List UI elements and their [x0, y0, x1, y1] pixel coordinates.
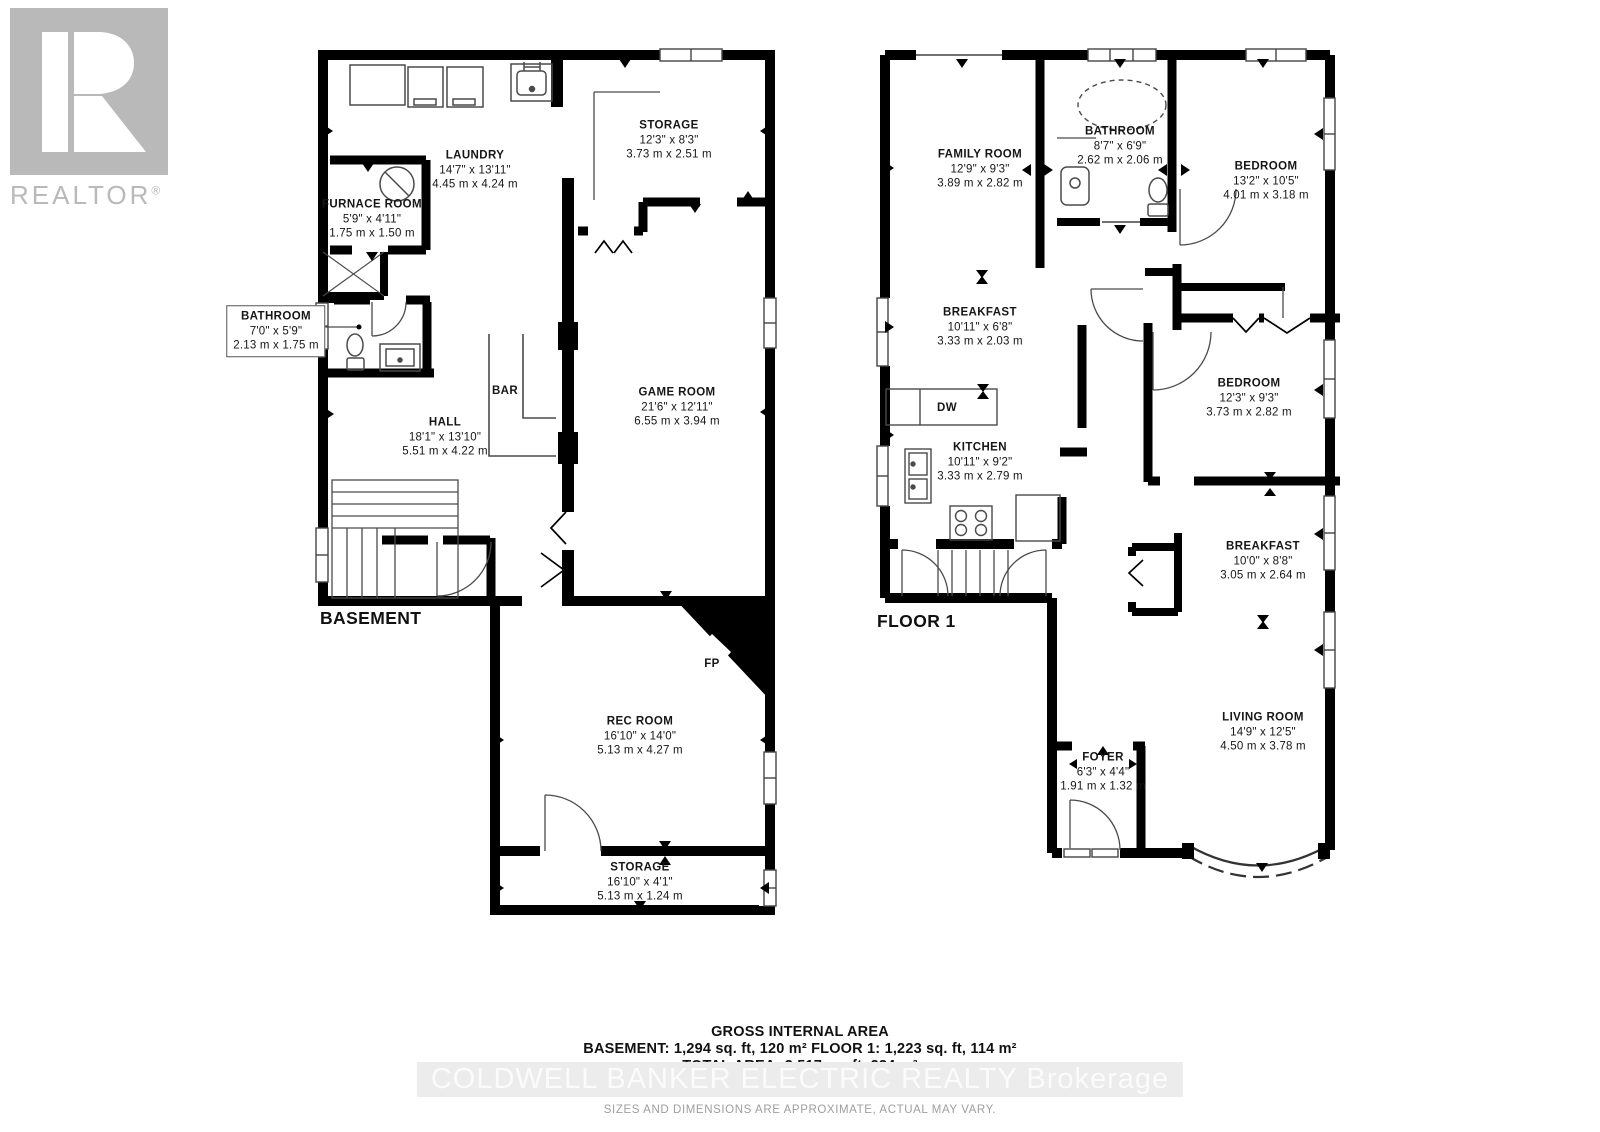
- room-label-rec-room: REC ROOM 16'10" x 14'0" 5.13 m x 4.27 m: [597, 714, 682, 758]
- stove: [950, 506, 992, 540]
- area-title: GROSS INTERNAL AREA: [0, 1024, 1600, 1041]
- room-label-storage-bottom: STORAGE 16'10" x 4'1" 5.13 m x 1.24 m: [597, 860, 682, 904]
- furnace-icon: [380, 167, 414, 201]
- laundry-appliances: [350, 65, 483, 107]
- room-label-floor1-bathroom: BATHROOM 8'7" x 6'9" 2.62 m x 2.06 m: [1077, 124, 1162, 168]
- room-label-dishwasher: DW: [937, 401, 957, 416]
- crawlspace-x: [323, 252, 384, 296]
- brokerage-watermark: COLDWELL BANKER ELECTRIC REALTY Brokerag…: [417, 1062, 1183, 1097]
- area-line1: BASEMENT: 1,294 sq. ft, 120 m² FLOOR 1: …: [0, 1041, 1600, 1058]
- floorplan-drawing: [0, 0, 1600, 1132]
- basement-door-chevrons: [541, 241, 632, 587]
- room-label-bedroom2: BEDROOM 12'3" x 9'3" 3.73 m x 2.82 m: [1206, 376, 1291, 420]
- basement-floorplan: [312, 44, 781, 910]
- basement-windows: [316, 49, 776, 906]
- bathtub: [1078, 80, 1166, 130]
- room-label-laundry: LAUNDRY 14'7" x 13'11" 4.45 m x 4.24 m: [432, 148, 517, 192]
- floorplan-page: REALTOR®: [0, 0, 1600, 1132]
- room-label-game-room: GAME ROOM 21'6" x 12'11" 6.55 m x 3.94 m: [634, 385, 719, 429]
- floor1-toilet: [1148, 178, 1168, 216]
- kitchen-sink: [905, 449, 931, 503]
- room-label-breakfast2: BREAKFAST 10'0" x 8'8" 3.05 m x 2.64 m: [1220, 539, 1305, 583]
- room-label-storage-top: STORAGE 12'3" x 8'3" 3.73 m x 2.51 m: [626, 118, 711, 162]
- room-label-bedroom1: BEDROOM 13'2" x 10'5" 4.01 m x 3.18 m: [1223, 159, 1308, 203]
- floor1-stairs: [938, 550, 1008, 596]
- basement-ticks: [324, 59, 769, 910]
- room-label-bar: BAR: [492, 384, 518, 399]
- room-label-family-room: FAMILY ROOM 12'9" x 9'3" 3.89 m x 2.82 m: [937, 147, 1022, 191]
- basement-shower: [380, 344, 420, 371]
- kitchen-counter: [1016, 495, 1060, 541]
- laundry-sink: [511, 62, 552, 101]
- floor1-bathroom-sink: [1061, 167, 1089, 205]
- basement-stairs: [332, 480, 458, 598]
- room-label-kitchen: KITCHEN 10'11" x 9'2" 3.33 m x 2.79 m: [937, 440, 1022, 484]
- bay-window: [1182, 843, 1330, 877]
- room-label-furnace-room: FURNACE ROOM 5'9" x 4'11" 1.75 m x 1.50 …: [322, 197, 422, 241]
- floor1-title: FLOOR 1: [877, 611, 956, 632]
- disclaimer-text: SIZES AND DIMENSIONS ARE APPROXIMATE, AC…: [604, 1104, 996, 1116]
- fireplace: [672, 596, 770, 700]
- room-label-fireplace: FP: [704, 657, 720, 672]
- basement-title: BASEMENT: [320, 608, 421, 629]
- basement-toilet: [347, 334, 364, 370]
- room-label-breakfast1: BREAKFAST 10'11" x 6'8" 3.33 m x 2.03 m: [937, 305, 1022, 349]
- room-label-hall: HALL 18'1" x 13'10" 5.51 m x 4.22 m: [402, 415, 487, 459]
- room-label-foyer: FOYER 6'3" x 4'4" 1.91 m x 1.32 m: [1060, 750, 1145, 794]
- room-label-basement-bathroom: BATHROOM 7'0" x 5'9" 2.13 m x 1.75 m: [226, 305, 325, 357]
- room-label-living-room: LIVING ROOM 14'9" x 12'5" 4.50 m x 3.78 …: [1220, 710, 1305, 754]
